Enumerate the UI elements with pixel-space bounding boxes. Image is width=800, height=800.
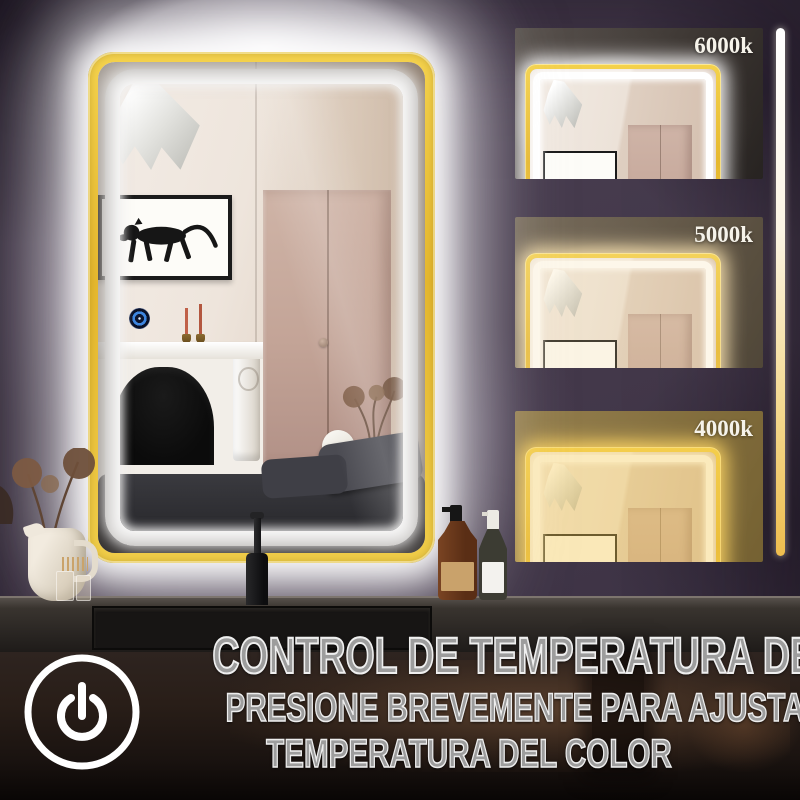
thumb-mirror (525, 64, 721, 179)
thumbnail-6000k: 6000k (515, 28, 763, 179)
thumbnail-4000k: 4000k (515, 411, 763, 562)
mirror-glass (98, 62, 425, 553)
pillow (260, 454, 348, 499)
spray-top (487, 510, 499, 530)
black-faucet (246, 512, 268, 605)
main-led-mirror (88, 52, 435, 563)
subline-1: PRESIONE BREVEMENTE PARA AJUSTAR LA (226, 686, 713, 730)
match-jars (56, 566, 96, 601)
pump-top (450, 505, 462, 523)
amber-pump-bottle (438, 505, 477, 600)
fireplace-opening (113, 367, 214, 465)
thumb-mirror (525, 447, 721, 562)
bottle-label (441, 562, 474, 590)
temperature-label: 4000k (694, 416, 753, 442)
subline-2: TEMPERATURA DEL COLOR (226, 732, 713, 776)
candlesticks (178, 303, 207, 343)
headline: CONTROL DE TEMPERATURA DE COLOR (212, 633, 725, 682)
panther-silhouette (102, 212, 228, 276)
thumb-mirror (525, 253, 721, 368)
thumbnail-5000k: 5000k (515, 217, 763, 368)
mirror-reflection-scene (98, 62, 425, 553)
thumb-led-ring (533, 455, 713, 562)
match-sticks (62, 557, 88, 571)
bottle-label (482, 562, 503, 593)
dried-flowers (0, 448, 112, 540)
spray-bottle (479, 510, 507, 600)
temperature-gradient-slider (776, 28, 785, 556)
fireplace-mantel (98, 359, 263, 484)
product-banner: 6000k 5000k (0, 0, 800, 800)
temperature-label: 6000k (694, 33, 753, 59)
power-icon (20, 650, 144, 774)
footer-text: CONTROL DE TEMPERATURA DE COLOR PRESIONE… (140, 634, 798, 776)
thumb-led-ring (533, 261, 713, 368)
fireplace-mantel-shelf (98, 342, 263, 359)
thumb-led-ring (533, 72, 713, 179)
temperature-label: 5000k (694, 222, 753, 248)
panther-artwork (98, 195, 232, 281)
mantel-pilaster (233, 359, 259, 462)
